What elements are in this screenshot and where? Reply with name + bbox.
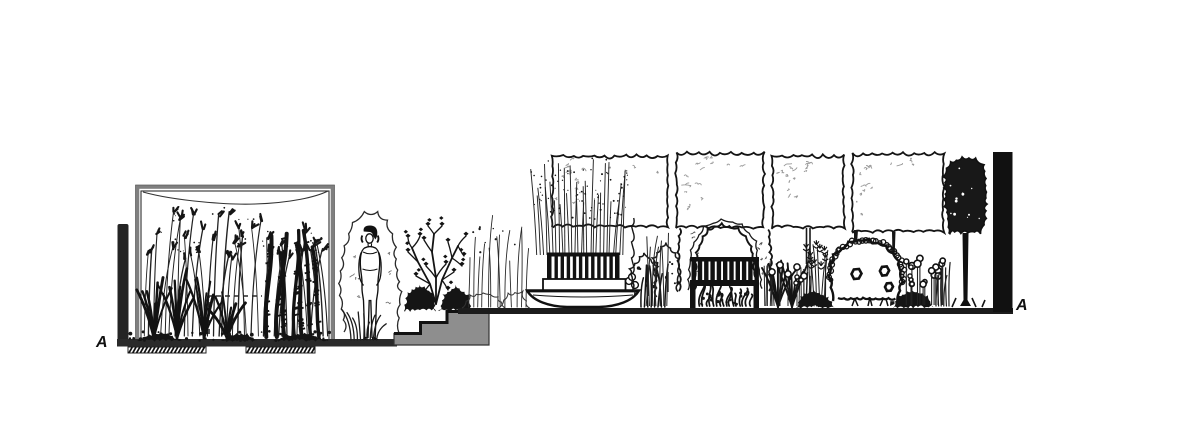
svg-text:A: A — [1015, 297, 1028, 314]
svg-text:A: A — [95, 334, 108, 351]
